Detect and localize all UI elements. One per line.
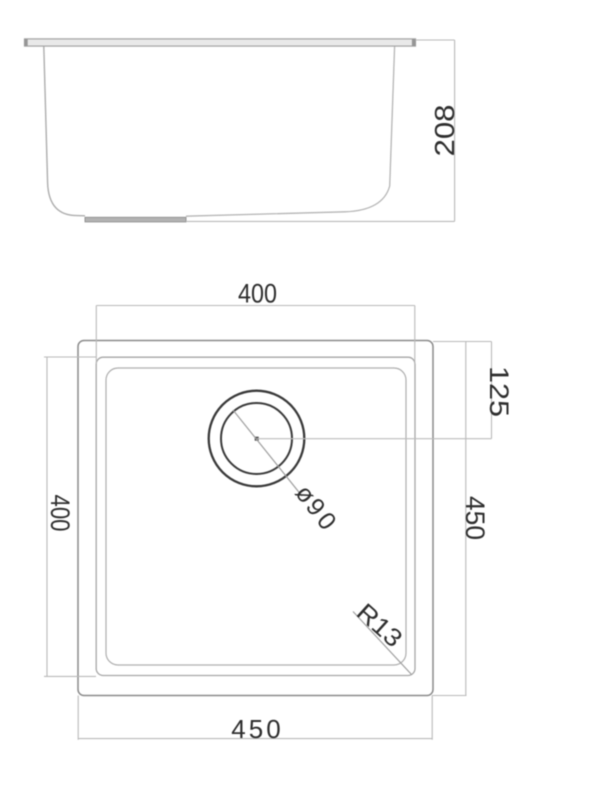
svg-text:450: 450 xyxy=(460,496,490,540)
svg-text:450: 450 xyxy=(231,714,283,744)
svg-text:400: 400 xyxy=(45,495,75,532)
svg-text:208: 208 xyxy=(429,105,460,157)
svg-text:125: 125 xyxy=(484,366,514,417)
svg-text:400: 400 xyxy=(238,279,277,309)
svg-text:R13: R13 xyxy=(351,598,408,653)
